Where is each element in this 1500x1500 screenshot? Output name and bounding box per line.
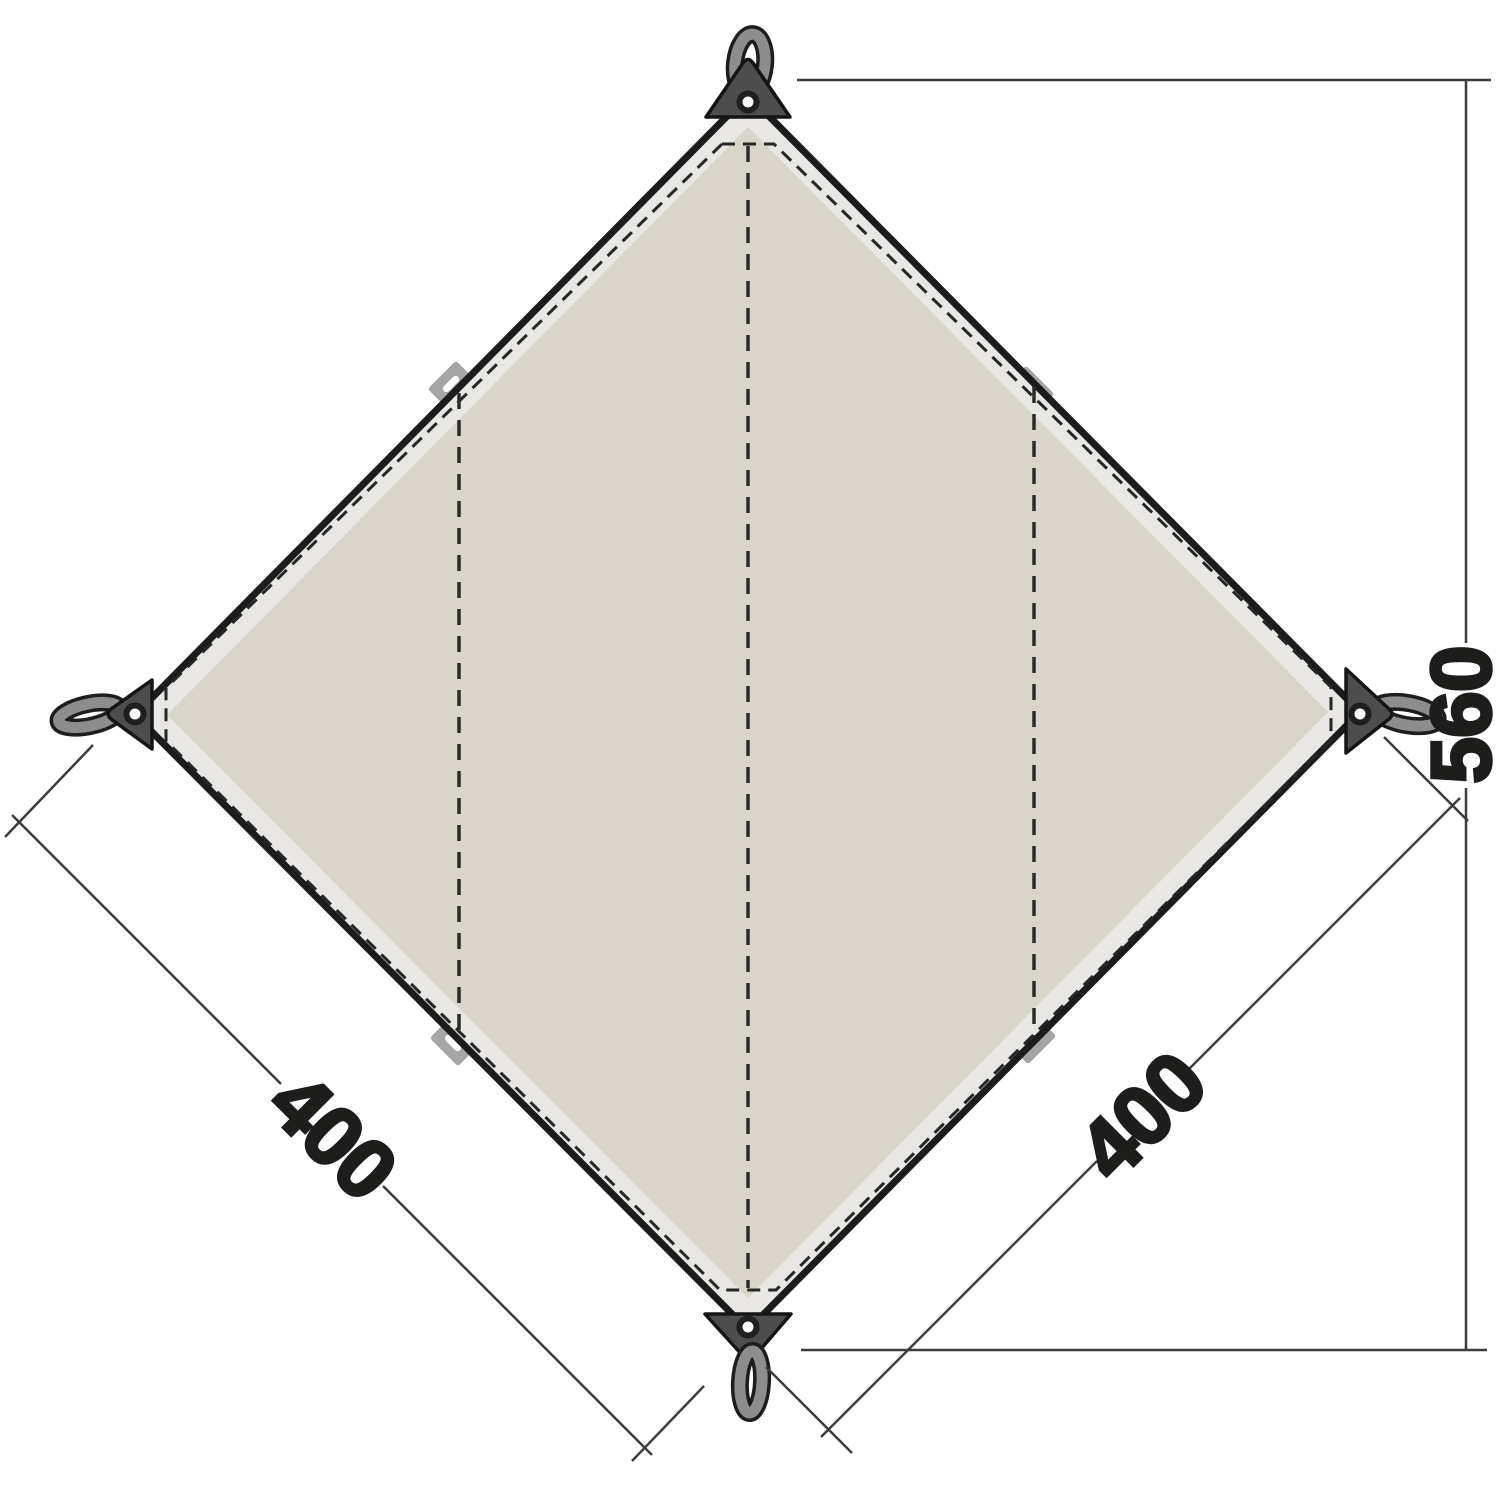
grommet-top-icon [740,94,757,111]
webbing-loop-bottom [738,1350,763,1413]
dimension-line-lower-segment [383,1186,652,1455]
extension-line-bottom-corner [632,1386,704,1461]
grommet-left-icon [127,706,144,723]
tarp-dimension-diagram: 560 400 400 [0,0,1500,1500]
extension-line-left-corner [5,745,93,837]
grommet-right-icon [1352,706,1369,723]
extension-line-bottom-corner [766,1367,852,1453]
grommet-bottom-icon [740,1319,757,1336]
dimension-value-560: 560 [1414,646,1500,783]
dimension-line-upper-segment [12,815,281,1084]
tarp-diagram-svg: 560 400 400 [0,0,1500,1500]
